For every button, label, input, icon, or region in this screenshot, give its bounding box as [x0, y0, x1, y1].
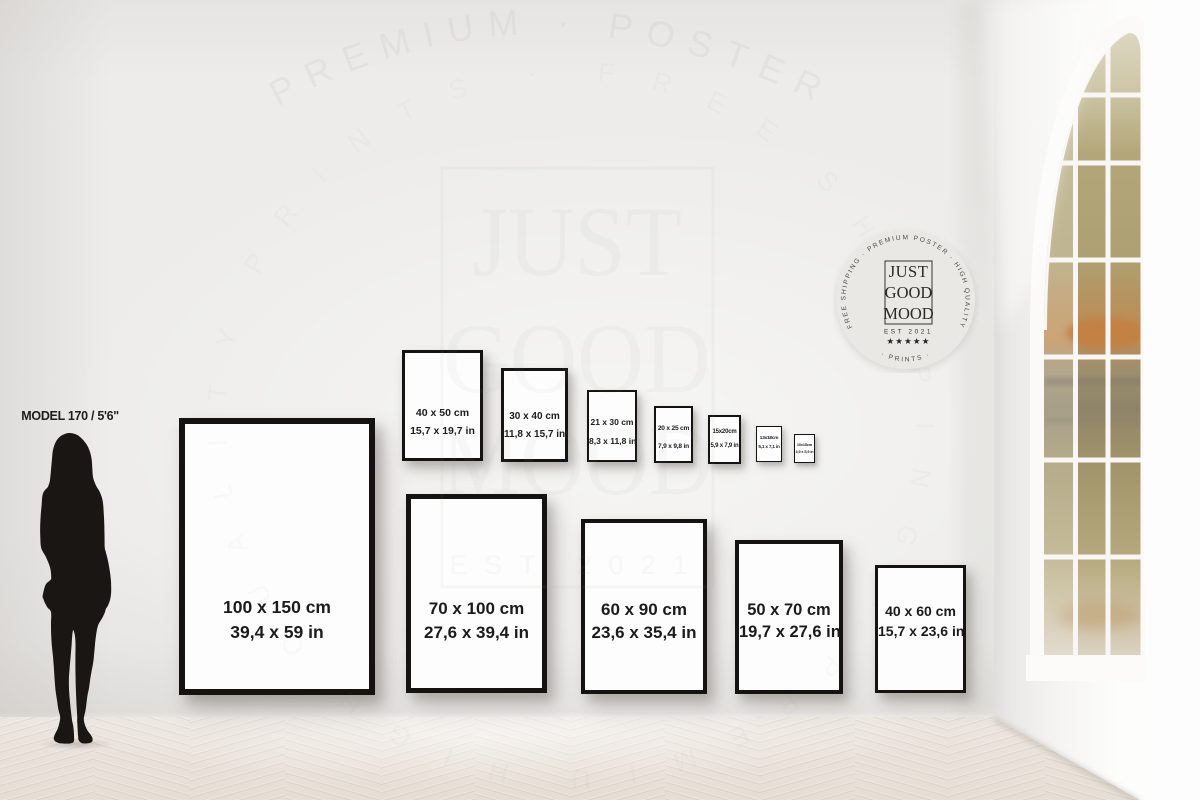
svg-text:EST 2021: EST 2021 — [884, 329, 933, 336]
svg-text:GOOD: GOOD — [443, 303, 711, 414]
svg-text:MOOD: MOOD — [883, 304, 934, 323]
svg-text:JUST: JUST — [889, 262, 929, 281]
svg-text:★★★★★: ★★★★★ — [886, 336, 930, 346]
svg-text:MOOD: MOOD — [442, 405, 713, 516]
svg-text:GOOD: GOOD — [885, 283, 933, 302]
svg-text:JUST: JUST — [472, 186, 682, 297]
svg-text:EST 2021: EST 2021 — [449, 550, 705, 580]
